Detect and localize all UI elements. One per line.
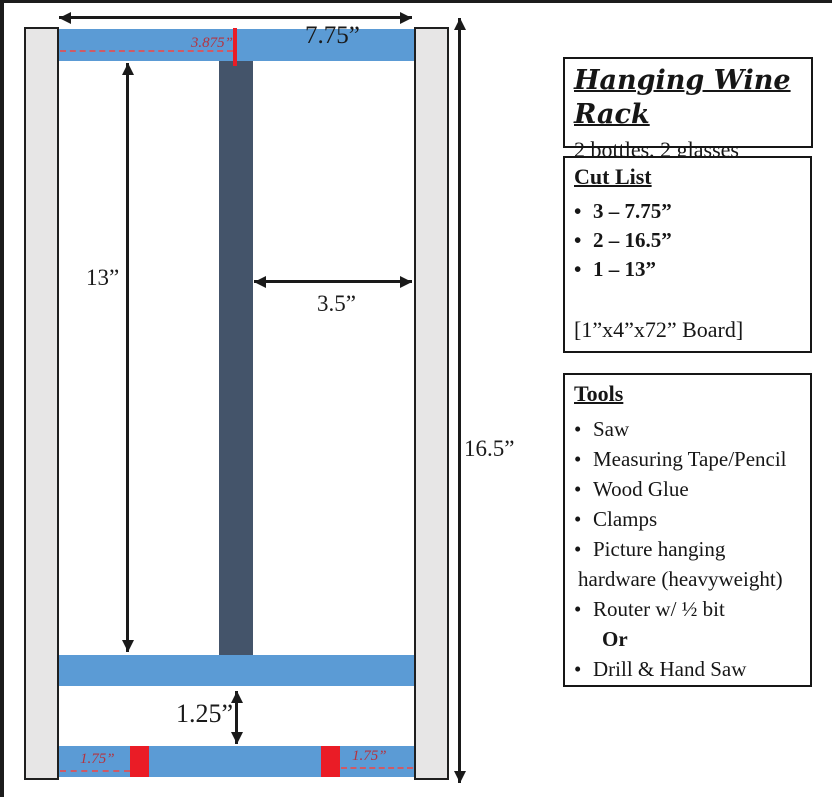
dim-arrow-total-height: [458, 18, 461, 783]
dim-arrow-bottom-gap: [235, 691, 238, 744]
list-item: • 3 – 7.75”: [574, 197, 801, 226]
tools-list: • Saw • Measuring Tape/Pencil • Wood Glu…: [574, 414, 801, 684]
dim-label-notch-left: 1.75”: [80, 751, 115, 768]
red-notch-left: [130, 746, 149, 777]
notch-right-dashline: [341, 767, 413, 769]
dim-label-inner-height: 13”: [86, 265, 119, 291]
cut-list: • 3 – 7.75” • 2 – 16.5” • 1 – 13”: [574, 197, 801, 284]
bullet-icon: •: [574, 654, 593, 684]
dim-arrow-inner-height: [126, 63, 129, 652]
dim-arrow-total-width: [59, 16, 412, 19]
bullet-icon: •: [574, 414, 593, 444]
arrowhead-left-icon: [59, 12, 71, 24]
scan-edge-top: [0, 0, 832, 3]
title-box: Hanging Wine Rack 2 bottles, 2 glasses: [563, 57, 813, 148]
arrowhead-up-icon: [122, 63, 134, 75]
list-item: • 2 – 16.5”: [574, 226, 801, 255]
middle-shelf-board: [59, 655, 414, 686]
list-item: • 1 – 13”: [574, 255, 801, 284]
right-side-rail: [414, 27, 449, 780]
list-item: • Picture hanging: [574, 534, 801, 564]
arrowhead-down-icon: [231, 732, 243, 744]
arrowhead-right-icon: [400, 276, 412, 288]
center-divider-board: [219, 61, 253, 655]
dim-arrow-bay-width: [254, 280, 412, 283]
dim-label-notch-right: 1.75”: [352, 748, 387, 765]
left-side-rail: [24, 27, 59, 780]
center-mark-tick: [233, 28, 237, 66]
cut-list-box: Cut List • 3 – 7.75” • 2 – 16.5” • 1 – 1…: [563, 156, 812, 353]
page-title: Hanging Wine Rack: [574, 64, 802, 132]
bullet-icon: •: [574, 444, 593, 474]
arrowhead-down-icon: [122, 640, 134, 652]
list-item: • Drill & Hand Saw: [574, 654, 801, 684]
list-item: • Wood Glue: [574, 474, 801, 504]
tools-heading: Tools: [574, 380, 623, 408]
tools-box: Tools • Saw • Measuring Tape/Pencil • Wo…: [563, 373, 812, 687]
list-item: • Saw: [574, 414, 801, 444]
arrowhead-down-icon: [454, 771, 466, 783]
bullet-icon: •: [574, 226, 593, 255]
red-notch-right: [321, 746, 340, 777]
list-item-continuation: hardware (heavyweight): [574, 564, 801, 594]
bullet-icon: •: [574, 474, 593, 504]
list-item: • Clamps: [574, 504, 801, 534]
arrowhead-right-icon: [400, 12, 412, 24]
arrowhead-left-icon: [254, 276, 266, 288]
cut-list-heading: Cut List: [574, 163, 652, 191]
dim-label-bay-width: 3.5”: [317, 291, 356, 317]
list-item: • Measuring Tape/Pencil: [574, 444, 801, 474]
board-stock-note: [1”x4”x72” Board]: [574, 317, 743, 343]
wine-rack-plan-page: 7.75” 3.875” 13” 3.5” 16.5” 1.25” 1.75” …: [0, 0, 832, 810]
bullet-icon: •: [574, 504, 593, 534]
dim-label-total-height: 16.5”: [464, 436, 514, 462]
bullet-icon: •: [574, 594, 593, 624]
arrowhead-up-icon: [454, 18, 466, 30]
dim-label-center-offset: 3.875”: [158, 35, 233, 52]
bullet-icon: •: [574, 534, 593, 564]
list-item-or: Or: [574, 624, 801, 654]
bullet-icon: •: [574, 197, 593, 226]
dim-label-bottom-gap: 1.25”: [176, 699, 233, 729]
bullet-icon: •: [574, 255, 593, 284]
list-item: • Router w/ ½ bit: [574, 594, 801, 624]
notch-left-dashline: [60, 770, 130, 772]
scan-edge-left: [0, 0, 4, 797]
dim-label-total-width: 7.75”: [305, 22, 360, 50]
